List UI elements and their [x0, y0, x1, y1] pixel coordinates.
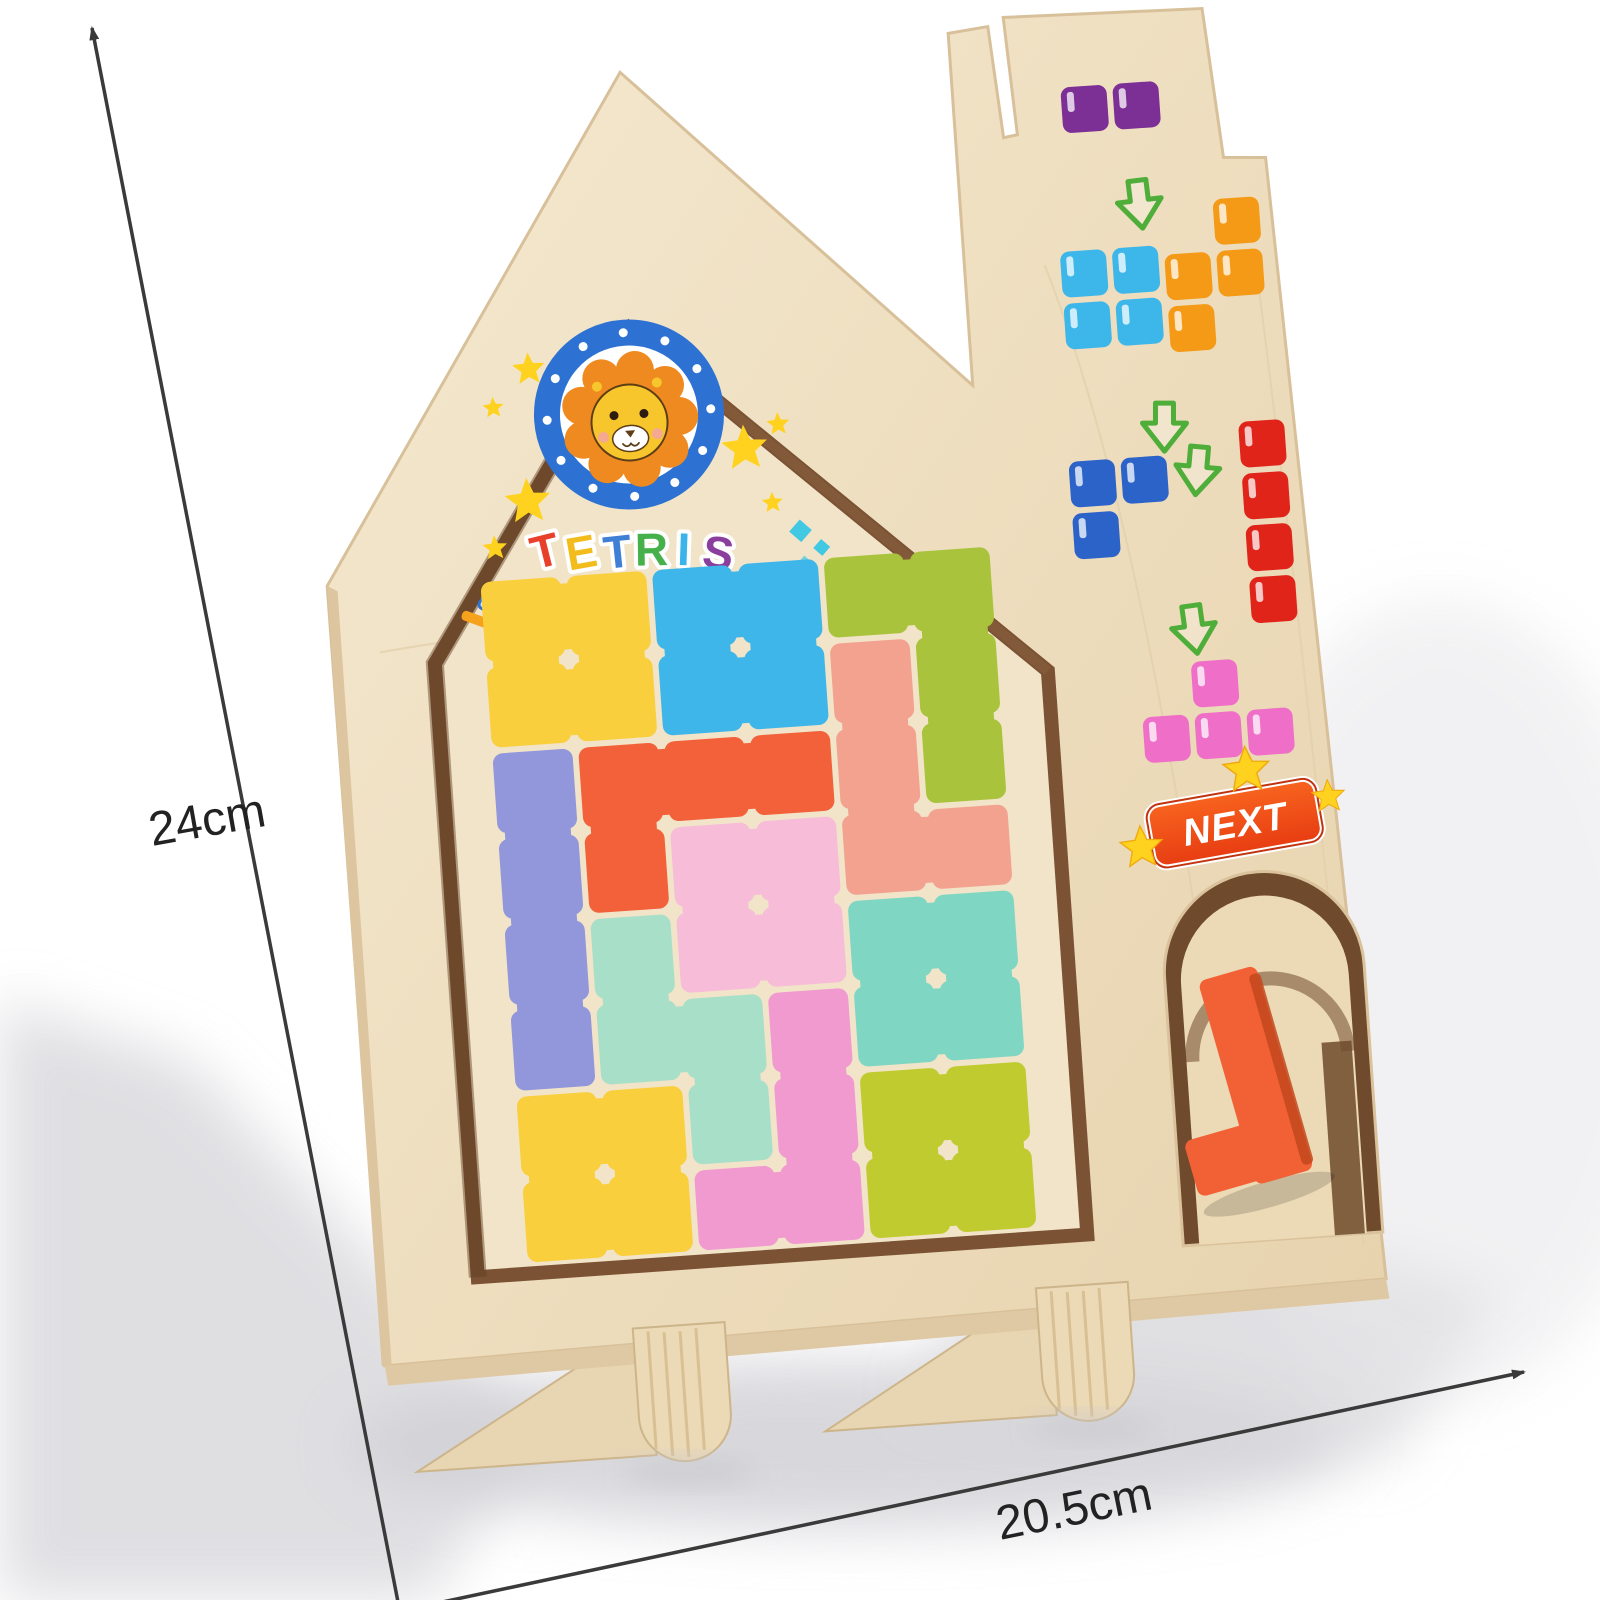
stand-foot-right	[1036, 1282, 1137, 1424]
sticker-cell	[1142, 714, 1191, 763]
product-photo-tetris-puzzle: T E T R I S NEXT	[0, 0, 1600, 1600]
logo-letter: R	[634, 523, 668, 576]
sticker-cell	[1212, 196, 1261, 245]
sticker-cell	[1242, 471, 1291, 520]
sticker-cell	[1060, 84, 1109, 133]
sticker-cell	[1063, 301, 1112, 350]
sticker-cell	[1115, 297, 1164, 346]
logo-letter: T	[601, 524, 634, 579]
sticker-cell	[1112, 81, 1161, 130]
sticker-cell	[1072, 511, 1121, 560]
sticker-cell	[1216, 248, 1265, 297]
sticker-cell	[1068, 459, 1117, 508]
sticker-cell	[1194, 711, 1243, 760]
logo-letter: I	[676, 523, 691, 575]
stand-foot-left	[633, 1322, 734, 1464]
sticker-cell	[1164, 252, 1213, 301]
sticker-cell	[1246, 707, 1295, 756]
sticker-cell	[1191, 659, 1240, 708]
sticker-cell	[1168, 303, 1217, 352]
sticker-cell	[1060, 249, 1109, 298]
sticker-cell	[1112, 245, 1161, 294]
sticker-cell	[1245, 523, 1294, 572]
sticker-cell	[1238, 419, 1287, 468]
sticker-cell	[1120, 455, 1169, 504]
sticker-cell	[1249, 574, 1298, 623]
